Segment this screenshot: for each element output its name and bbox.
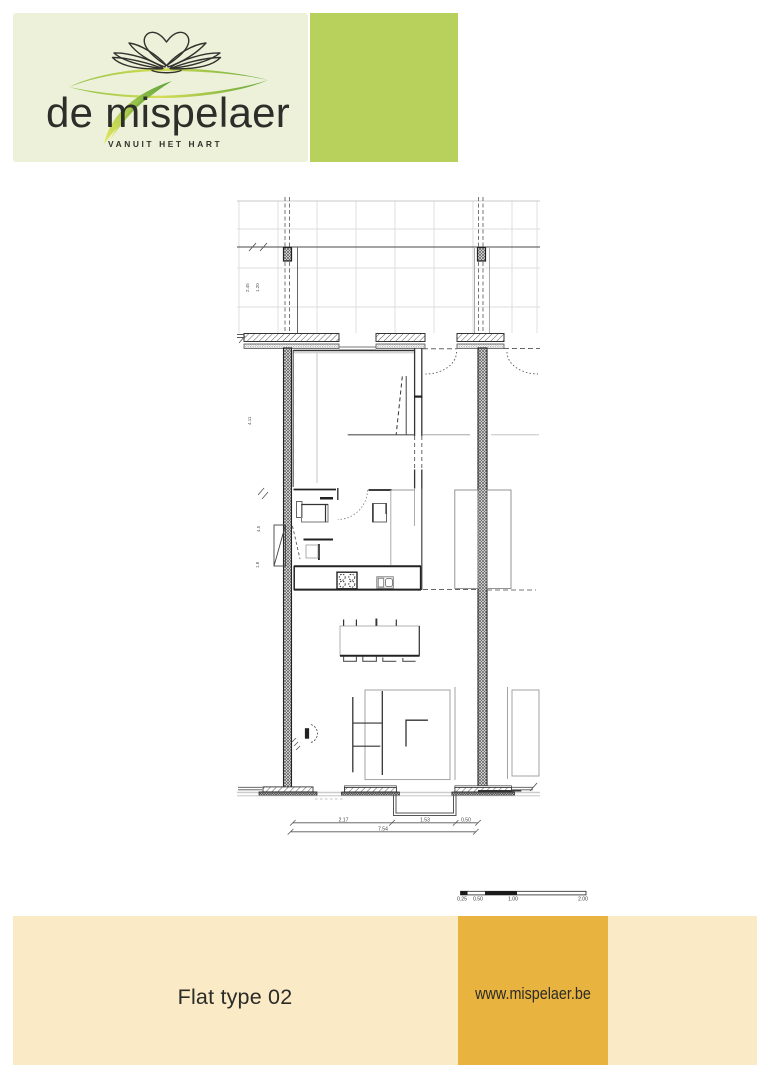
- svg-text:0.25: 0.25: [457, 897, 467, 903]
- svg-text:4.11: 4.11: [247, 416, 252, 425]
- svg-text:2.45: 2.45: [245, 283, 250, 292]
- svg-text:4.5: 4.5: [256, 525, 261, 532]
- svg-text:2.17: 2.17: [339, 818, 349, 824]
- svg-text:1.53: 1.53: [420, 818, 430, 824]
- svg-text:0.50: 0.50: [461, 818, 471, 824]
- svg-text:1.00: 1.00: [508, 897, 518, 903]
- svg-text:1.20: 1.20: [255, 283, 260, 292]
- svg-text:2.00: 2.00: [578, 897, 588, 903]
- svg-text:7.54: 7.54: [378, 827, 388, 833]
- svg-text:1.8: 1.8: [255, 561, 260, 568]
- svg-text:0.50: 0.50: [473, 897, 483, 903]
